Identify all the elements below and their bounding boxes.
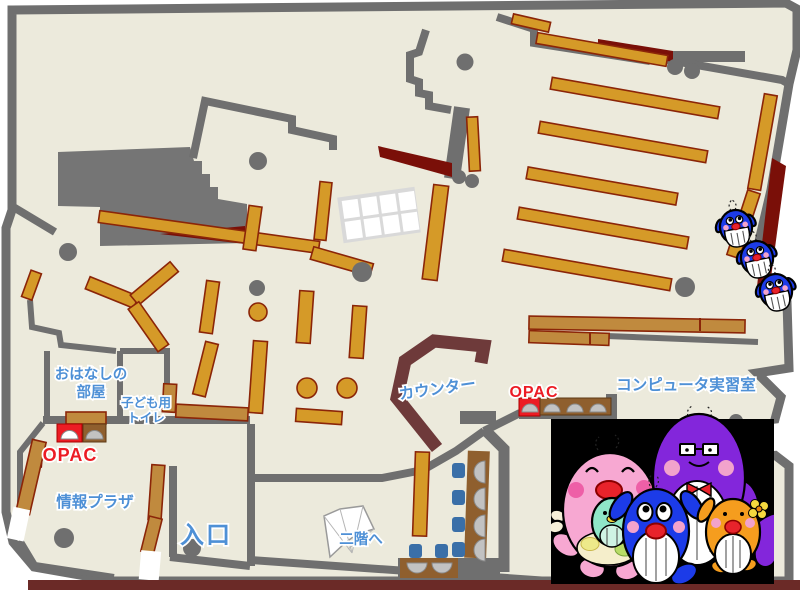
flower-icon [749, 500, 769, 519]
label-to-second-floor: 二階へ [339, 530, 383, 548]
library-floor-map: おはなしの 部屋 子ども用 トイレ OPAC 情報プラザ 入口 カウンター OP… [0, 0, 800, 590]
label-kids-toilet-line2: トイレ [127, 411, 165, 425]
label-kids-toilet-line1: 子ども用 [121, 396, 171, 410]
label-story-room-line2: 部屋 [77, 383, 106, 401]
opac-station-left [57, 424, 106, 442]
label-story-room-line1: おはなしの [55, 366, 128, 383]
label-opac-left: OPAC [43, 445, 98, 465]
label-computer-room: コンピュータ実習室 [616, 375, 756, 394]
mascot-photo [547, 406, 796, 589]
label-info-plaza: 情報プラザ [56, 492, 134, 511]
label-entrance: 入口 [180, 522, 232, 549]
floor-map-svg: おはなしの 部屋 子ども用 トイレ OPAC 情報プラザ 入口 カウンター OP… [0, 0, 800, 590]
label-opac-right: OPAC [509, 384, 558, 401]
